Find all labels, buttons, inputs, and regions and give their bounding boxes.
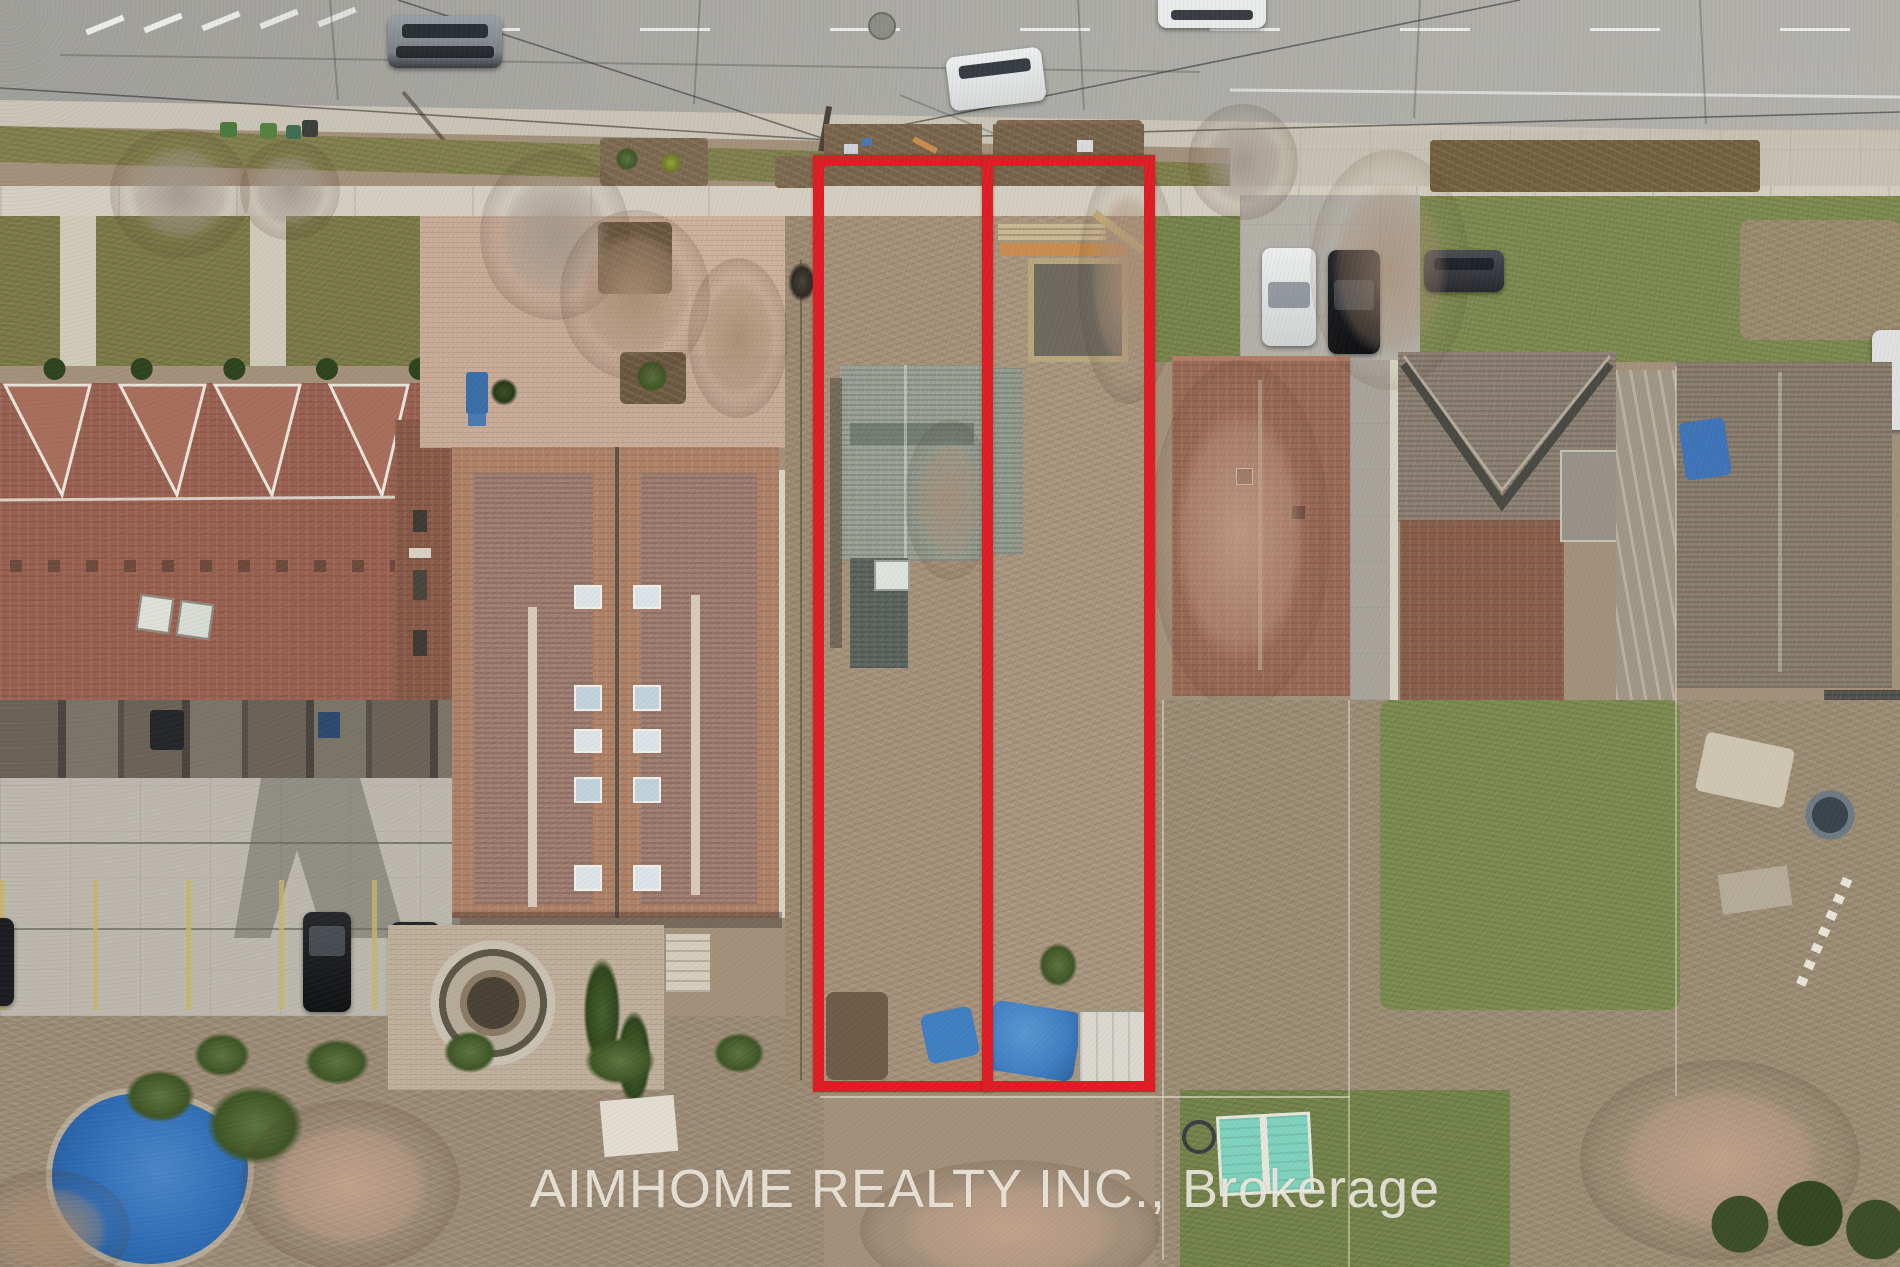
- skylight: [574, 777, 602, 803]
- blue-tarp-roof: [1678, 417, 1732, 481]
- skylight: [574, 685, 602, 711]
- round-bush: [788, 262, 816, 302]
- plywood: [1718, 865, 1793, 914]
- stone-slabs: [1695, 731, 1796, 808]
- bare-tree-canopy: [560, 210, 710, 380]
- dirt-patch: [1740, 220, 1900, 340]
- skylight: [574, 585, 602, 609]
- blue-bin: [318, 712, 340, 738]
- white-board: [600, 1095, 679, 1157]
- parked-item-dark: [150, 710, 184, 750]
- lot-outline-left: [813, 155, 993, 1092]
- fence-line: [800, 260, 802, 1080]
- shrub: [614, 146, 640, 172]
- bare-tree-canopy: [240, 1100, 460, 1267]
- car-dark-partial: [0, 918, 14, 1006]
- bare-tree-canopy: [1310, 150, 1470, 390]
- bare-tree-over-house: [1150, 360, 1330, 710]
- clutter-strip: [1616, 370, 1676, 700]
- skylight: [574, 729, 602, 753]
- lot-outline-right: [982, 155, 1155, 1092]
- townhouse-skylight: [136, 594, 175, 634]
- apartment-wing-right: [619, 447, 779, 918]
- car-white-top-edge: [1158, 0, 1266, 28]
- townhouse-ridge-vents: [10, 560, 410, 572]
- skylight: [633, 865, 661, 891]
- bare-tree-canopy: [110, 128, 250, 258]
- fence-line: [1675, 366, 1677, 1096]
- debris-white: [1077, 140, 1093, 152]
- shrub-dark: [490, 378, 518, 406]
- skylight: [633, 729, 661, 753]
- blue-bins: [466, 372, 488, 414]
- skylight: [633, 685, 661, 711]
- townhouse-gables: [0, 383, 420, 513]
- car-black-parked: [303, 912, 351, 1012]
- car-suv-silver: [388, 16, 502, 68]
- fence-line-horizontal: [820, 1096, 1350, 1098]
- debris-orange: [912, 136, 938, 154]
- townhouse-rear-patios: [0, 700, 460, 778]
- ridge-vent-stripe: [528, 607, 537, 907]
- bare-tree-canopy: [1188, 104, 1298, 220]
- bare-tree-canopy: [688, 258, 788, 418]
- walkway: [60, 216, 96, 366]
- townhouse-skylight: [176, 600, 215, 640]
- planting-bed: [1430, 140, 1760, 192]
- roof-eave: [1172, 356, 1350, 361]
- skylight: [633, 585, 661, 609]
- hedge-dark-corner: [1700, 1160, 1900, 1267]
- car-white-driveway: [1262, 248, 1316, 346]
- fire-pit: [1800, 780, 1860, 850]
- recycling-bins: [220, 118, 320, 144]
- backyard-debris: [1680, 720, 1900, 1040]
- brokerage-watermark: AIMHOME REALTY INC., Brokerage: [530, 1158, 1440, 1220]
- bicycle-wheel: [1182, 1120, 1216, 1154]
- debris-white: [844, 144, 858, 154]
- driveway-gap: [1350, 360, 1390, 700]
- shrub: [660, 152, 682, 174]
- roof-ridge: [1778, 372, 1782, 672]
- ladder: [1796, 873, 1854, 987]
- skylight: [574, 865, 602, 891]
- house-b-lower-roof: [1400, 520, 1564, 702]
- pool-bushes: [120, 1066, 200, 1126]
- house-b-flat-roof: [1560, 450, 1620, 542]
- house-c-roof: [1676, 362, 1892, 688]
- debris-blue: [862, 138, 872, 146]
- skylight: [633, 777, 661, 803]
- aerial-photo: AIMHOME REALTY INC., Brokerage: [0, 0, 1900, 1267]
- apartment-wing-left: [452, 447, 615, 918]
- parking-crack: [0, 842, 460, 844]
- bare-tree-canopy: [240, 140, 340, 240]
- ridge-vent-stripe: [691, 595, 700, 895]
- backyard-lawn: [1380, 700, 1680, 1010]
- garden-steps: [666, 934, 710, 992]
